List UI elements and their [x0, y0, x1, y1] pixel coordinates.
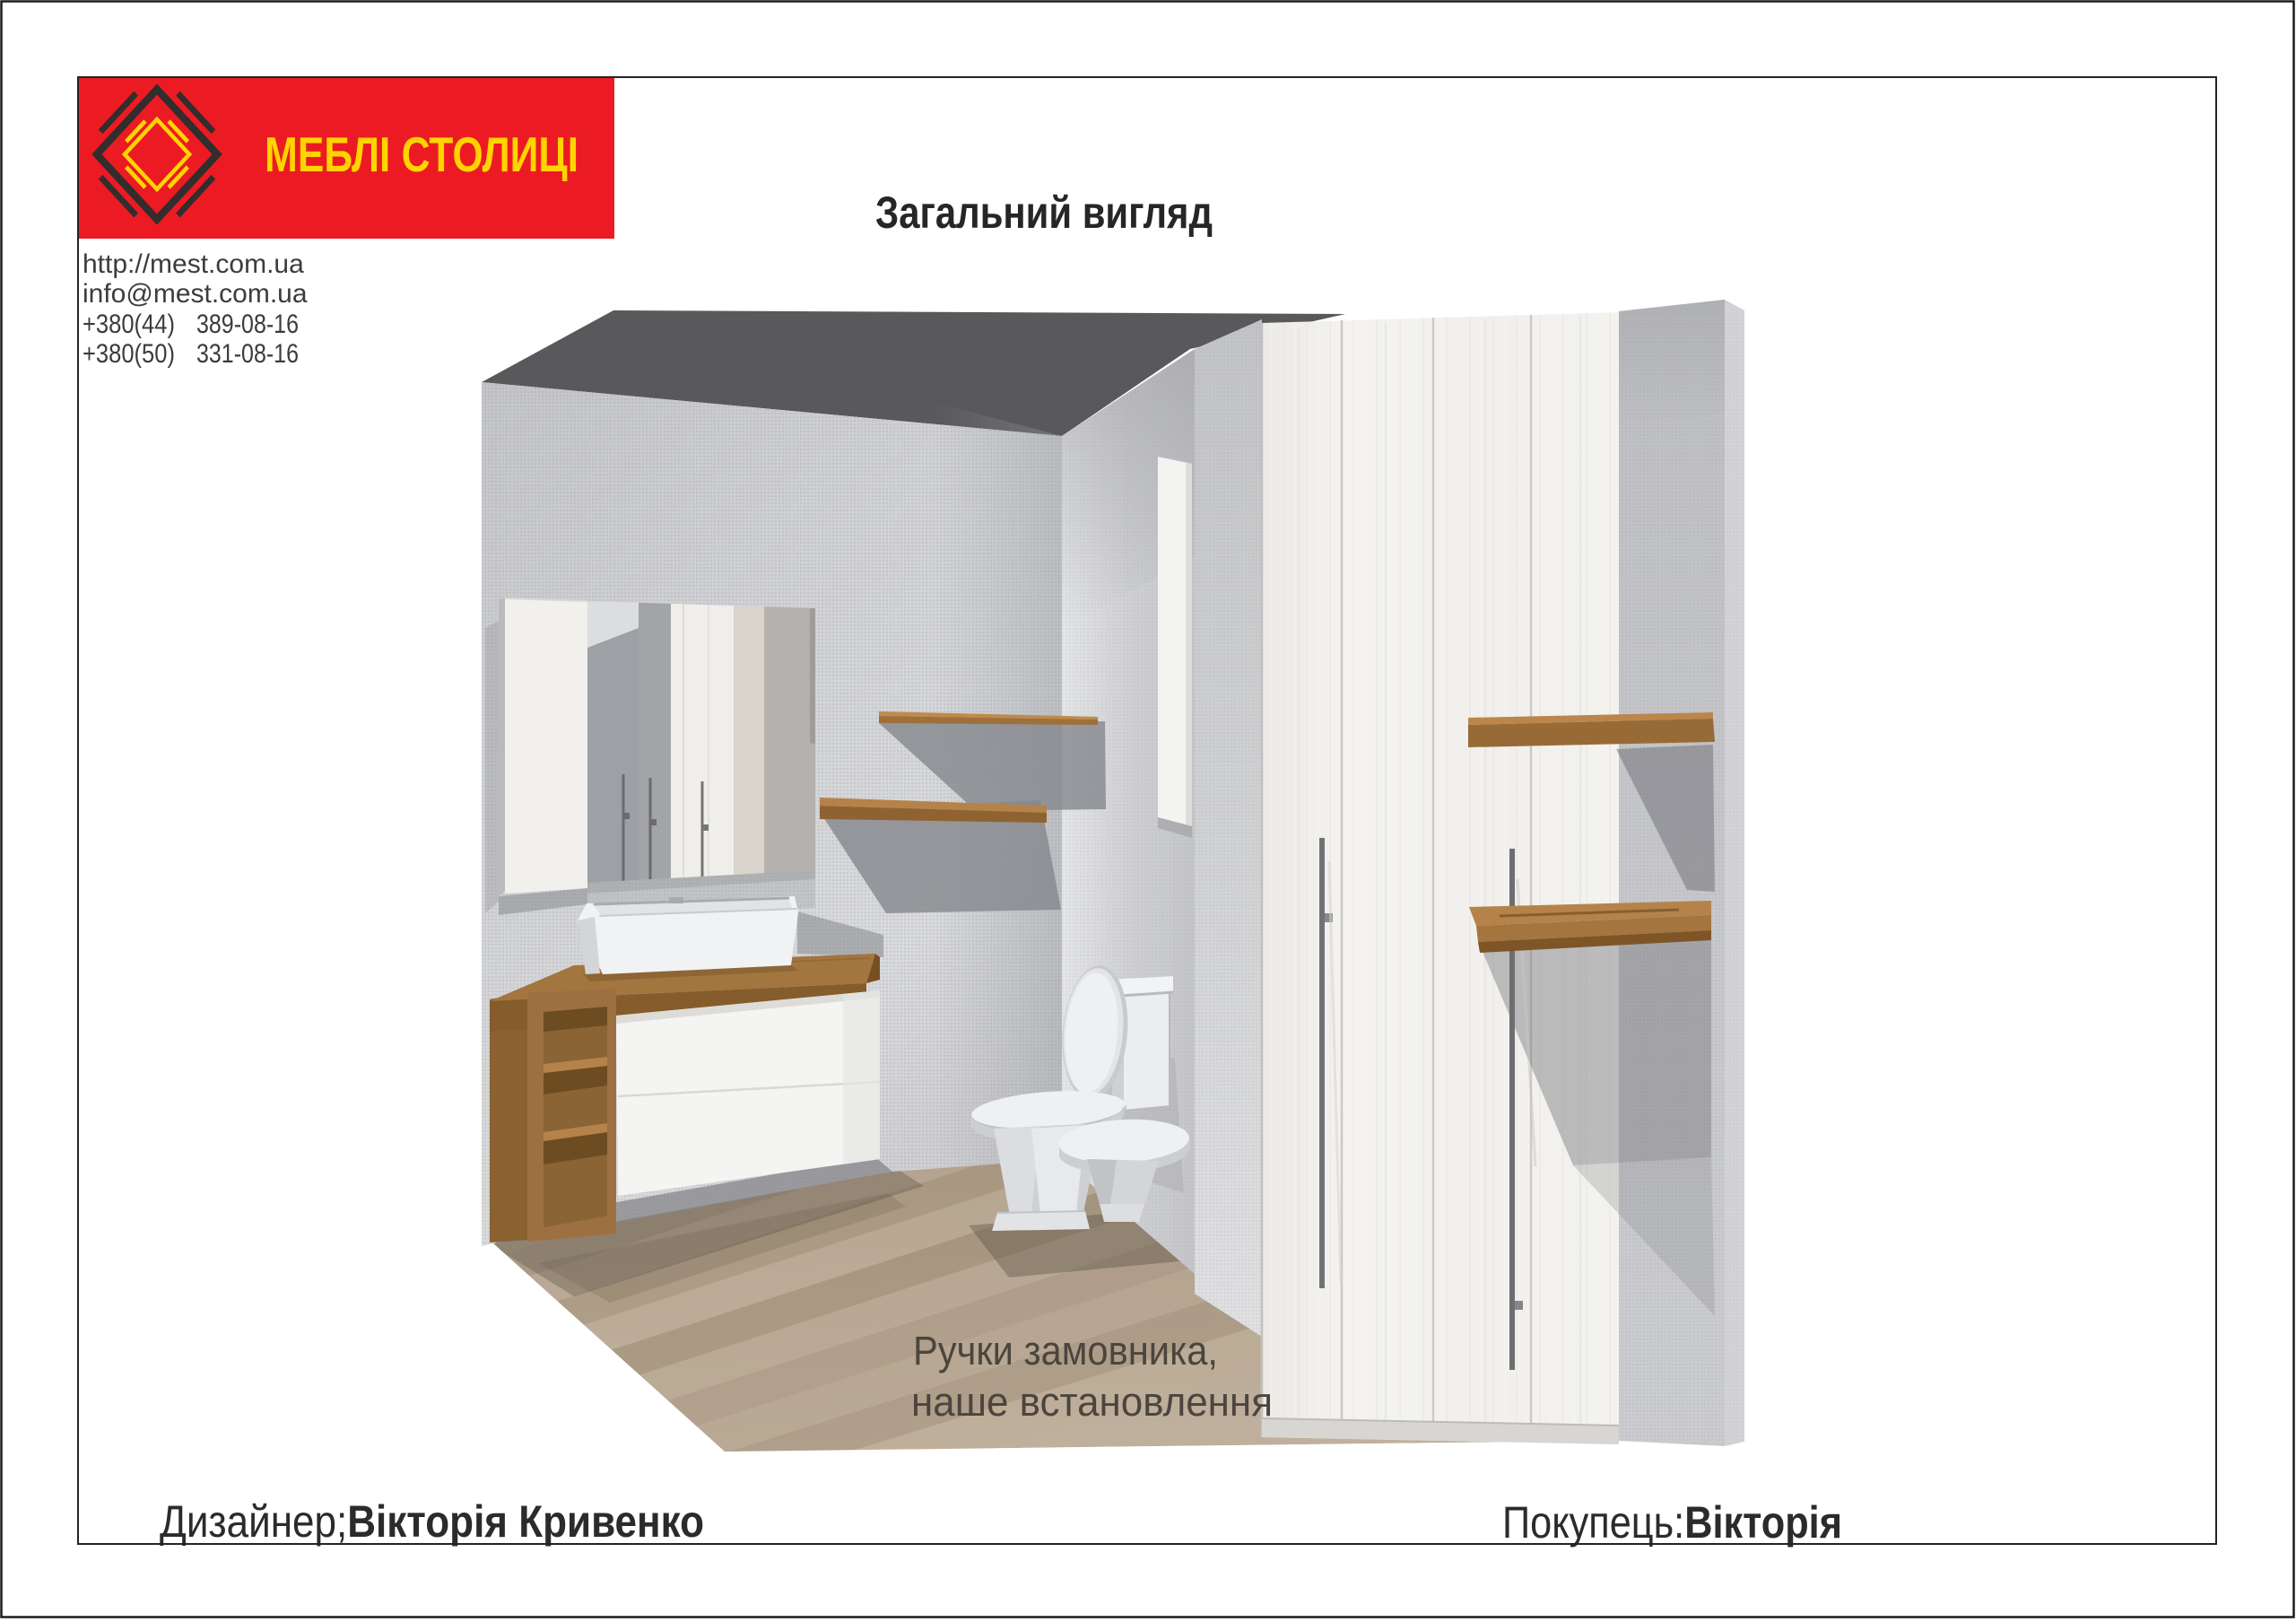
svg-text:331-08-16: 331-08-16	[196, 339, 299, 369]
svg-text:http://mest.com.ua: http://mest.com.ua	[83, 249, 304, 279]
svg-text:Дизайнер;Вікторія Кривенко: Дизайнер;Вікторія Кривенко	[160, 1496, 704, 1547]
svg-text:Покупець:Вікторія: Покупець:Вікторія	[1502, 1497, 1842, 1548]
svg-text:+380(50): +380(50)	[83, 339, 175, 369]
svg-text:info@mest.com.ua: info@mest.com.ua	[83, 279, 308, 309]
svg-text:наше встановлення: наше встановлення	[911, 1379, 1273, 1425]
svg-text:389-08-16: 389-08-16	[196, 310, 299, 339]
svg-text:Загальний вигляд: Загальний вигляд	[875, 187, 1213, 238]
svg-text:Ручки замовника,: Ручки замовника,	[913, 1328, 1218, 1373]
svg-text:+380(44): +380(44)	[83, 310, 175, 339]
svg-text:МЕБЛІ СТОЛИЦІ: МЕБЛІ СТОЛИЦІ	[265, 126, 578, 182]
